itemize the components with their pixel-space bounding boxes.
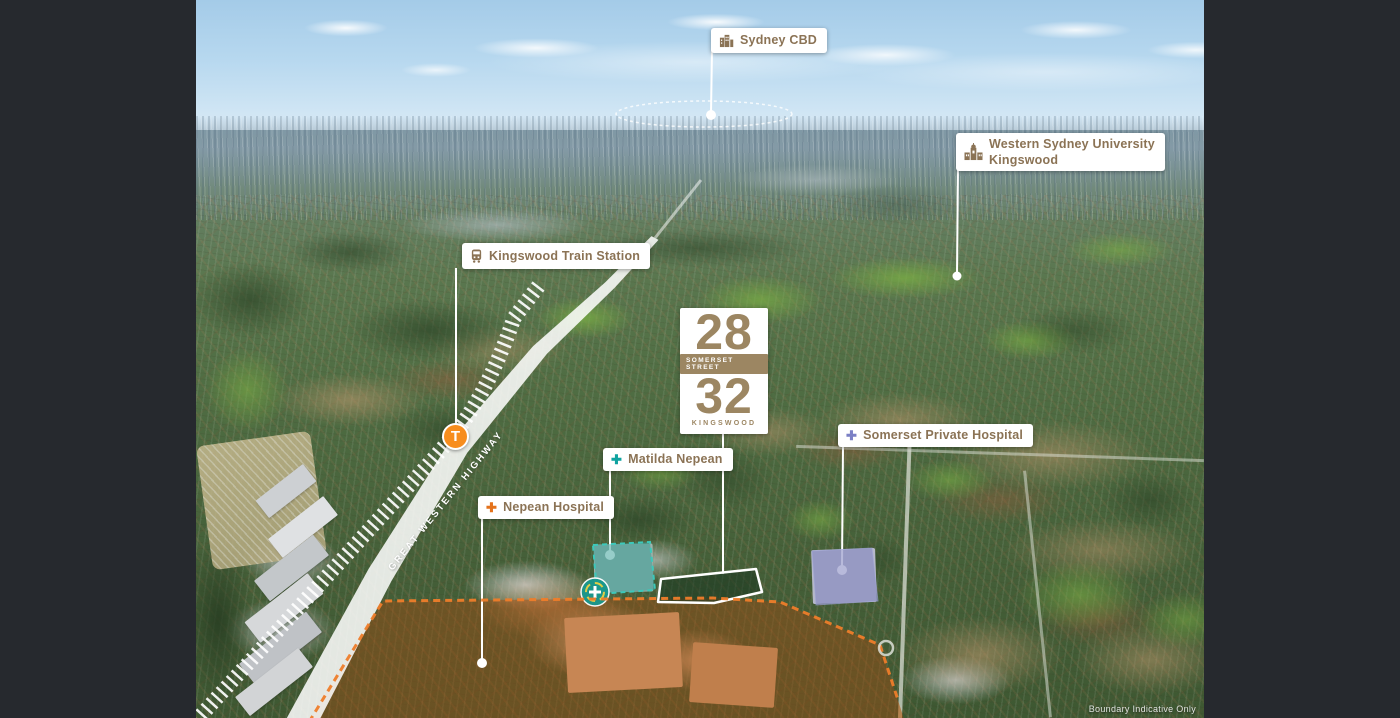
university-dot: [953, 272, 962, 281]
train-station-marker: T: [442, 423, 469, 450]
cbd-dot: [706, 110, 716, 120]
aerial-photo: GREAT WESTERN HIGHWAY Sydney CBD Western…: [196, 0, 1204, 718]
train-icon: [470, 248, 483, 264]
university-icon: [964, 143, 983, 161]
hospital-cross-icon: ✚: [846, 429, 857, 442]
sign-number-bottom: 32: [695, 376, 753, 416]
cbd-highlight-ellipse: [616, 101, 792, 127]
hospital-cross-icon: ✚: [486, 501, 497, 514]
left-letterbox-bar: [0, 0, 196, 718]
callout-label: Western Sydney University Kingswood: [989, 138, 1155, 166]
precinct-boundary-dashed: [309, 598, 898, 718]
university-leader-line: [957, 167, 958, 273]
cbd-leader-line: [711, 50, 712, 112]
train-marker-letter: T: [451, 429, 460, 444]
somerset-leader-line: [842, 447, 843, 566]
callout-nepean-hospital: ✚ Nepean Hospital: [478, 496, 614, 519]
callout-somerset-hospital: ✚ Somerset Private Hospital: [838, 424, 1033, 447]
university-line2: Kingswood: [989, 154, 1155, 167]
highway-distant-continuation: [655, 180, 701, 238]
callout-label: Nepean Hospital: [503, 501, 604, 514]
callout-label: Kingswood Train Station: [489, 250, 640, 263]
hospital-cross-icon: ✚: [611, 453, 622, 466]
callout-label: Matilda Nepean: [628, 453, 723, 466]
sign-number-top: 28: [695, 312, 753, 352]
somerset-hospital-tint: [812, 548, 878, 605]
site-address-sign: 28 SOMERSET STREET 32 KINGSWOOD: [680, 308, 768, 434]
callout-sydney-cbd: Sydney CBD: [711, 28, 827, 53]
university-line1: Western Sydney University: [989, 138, 1155, 151]
boundary-disclaimer: Boundary Indicative Only: [1089, 704, 1196, 714]
callout-label: Sydney CBD: [740, 34, 817, 47]
great-western-highway-band: [287, 236, 659, 718]
right-letterbox-bar: [1204, 0, 1400, 718]
nepean-dot: [477, 658, 487, 668]
callout-matilda-nepean: ✚ Matilda Nepean: [603, 448, 733, 471]
callout-train-station: Kingswood Train Station: [462, 243, 650, 269]
city-buildings-icon: [719, 33, 734, 48]
callout-university: Western Sydney University Kingswood: [956, 133, 1165, 171]
callout-label: Somerset Private Hospital: [863, 429, 1023, 442]
sign-suburb: KINGSWOOD: [692, 420, 757, 427]
